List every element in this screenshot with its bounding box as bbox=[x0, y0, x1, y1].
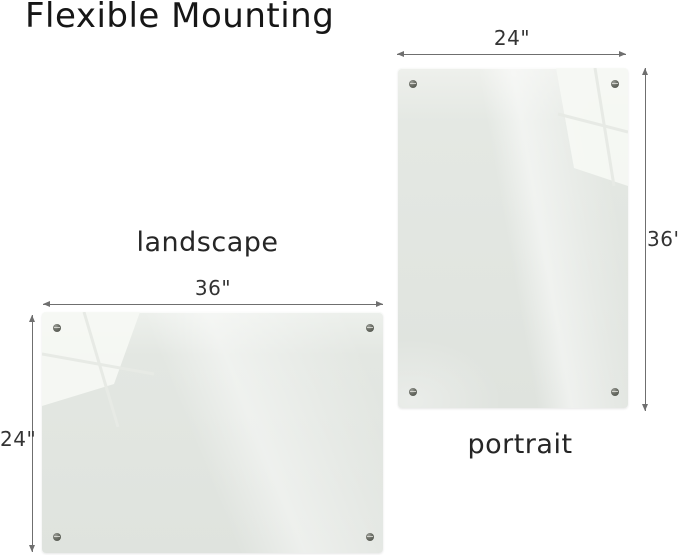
mounting-screw-icon bbox=[409, 388, 417, 396]
flexible-mounting-diagram: Flexible Mounting 24" 36" portrait lands… bbox=[0, 0, 679, 555]
portrait-height-dimension-arrow bbox=[645, 68, 646, 411]
mounting-screw-icon bbox=[53, 324, 61, 332]
portrait-width-dimension-label: 24" bbox=[397, 26, 627, 50]
landscape-height-dimension-label: 24" bbox=[0, 427, 29, 451]
mounting-screw-icon bbox=[611, 388, 619, 396]
mounting-screw-icon bbox=[53, 533, 61, 541]
mounting-screw-icon bbox=[366, 533, 374, 541]
landscape-caption: landscape bbox=[80, 227, 335, 258]
landscape-width-dimension-label: 36" bbox=[43, 276, 383, 300]
page-title: Flexible Mounting bbox=[25, 0, 334, 36]
mounting-screw-icon bbox=[409, 80, 417, 88]
mounting-screw-icon bbox=[611, 80, 619, 88]
glass-reflection bbox=[398, 68, 628, 408]
glass-reflection bbox=[42, 312, 383, 553]
portrait-glass-board bbox=[398, 68, 628, 408]
mounting-screw-icon bbox=[366, 324, 374, 332]
portrait-width-dimension-arrow bbox=[397, 54, 626, 55]
portrait-height-dimension-label: 36" bbox=[647, 227, 679, 251]
landscape-glass-board bbox=[42, 312, 383, 553]
portrait-caption: portrait bbox=[398, 429, 642, 460]
landscape-width-dimension-arrow bbox=[43, 304, 383, 305]
